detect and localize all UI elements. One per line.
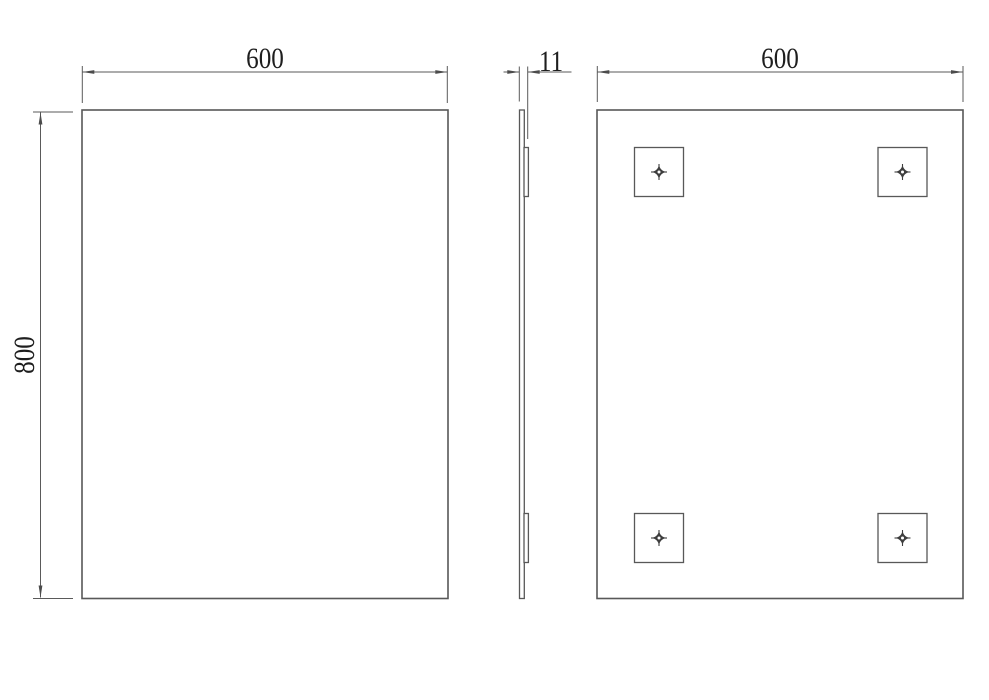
- dim-label-side-thickness: 11: [539, 47, 563, 77]
- dim-label-front-width: 600: [246, 44, 284, 74]
- arrow-left-icon: [82, 70, 94, 74]
- arrow-up-icon: [39, 113, 43, 125]
- drawing-linework: [0, 0, 989, 700]
- side-view-bracket-top: [524, 148, 528, 197]
- dim-label-back-width: 600: [761, 44, 799, 74]
- front-view: [82, 110, 448, 599]
- arrow-right-icon: [435, 70, 447, 74]
- arrow-left-icon: [597, 70, 609, 74]
- arrow-right-icon: [951, 70, 963, 74]
- dim-label-front-height: 800: [10, 336, 40, 374]
- arrow-down-icon: [39, 586, 43, 598]
- back-view: [597, 110, 963, 599]
- side-view: [520, 110, 529, 599]
- front-view-outline: [82, 110, 448, 599]
- side-view-bracket-bottom: [524, 514, 528, 563]
- technical-drawing-page: 600 800 11 600: [0, 0, 989, 700]
- arrow-right-icon: [507, 70, 519, 74]
